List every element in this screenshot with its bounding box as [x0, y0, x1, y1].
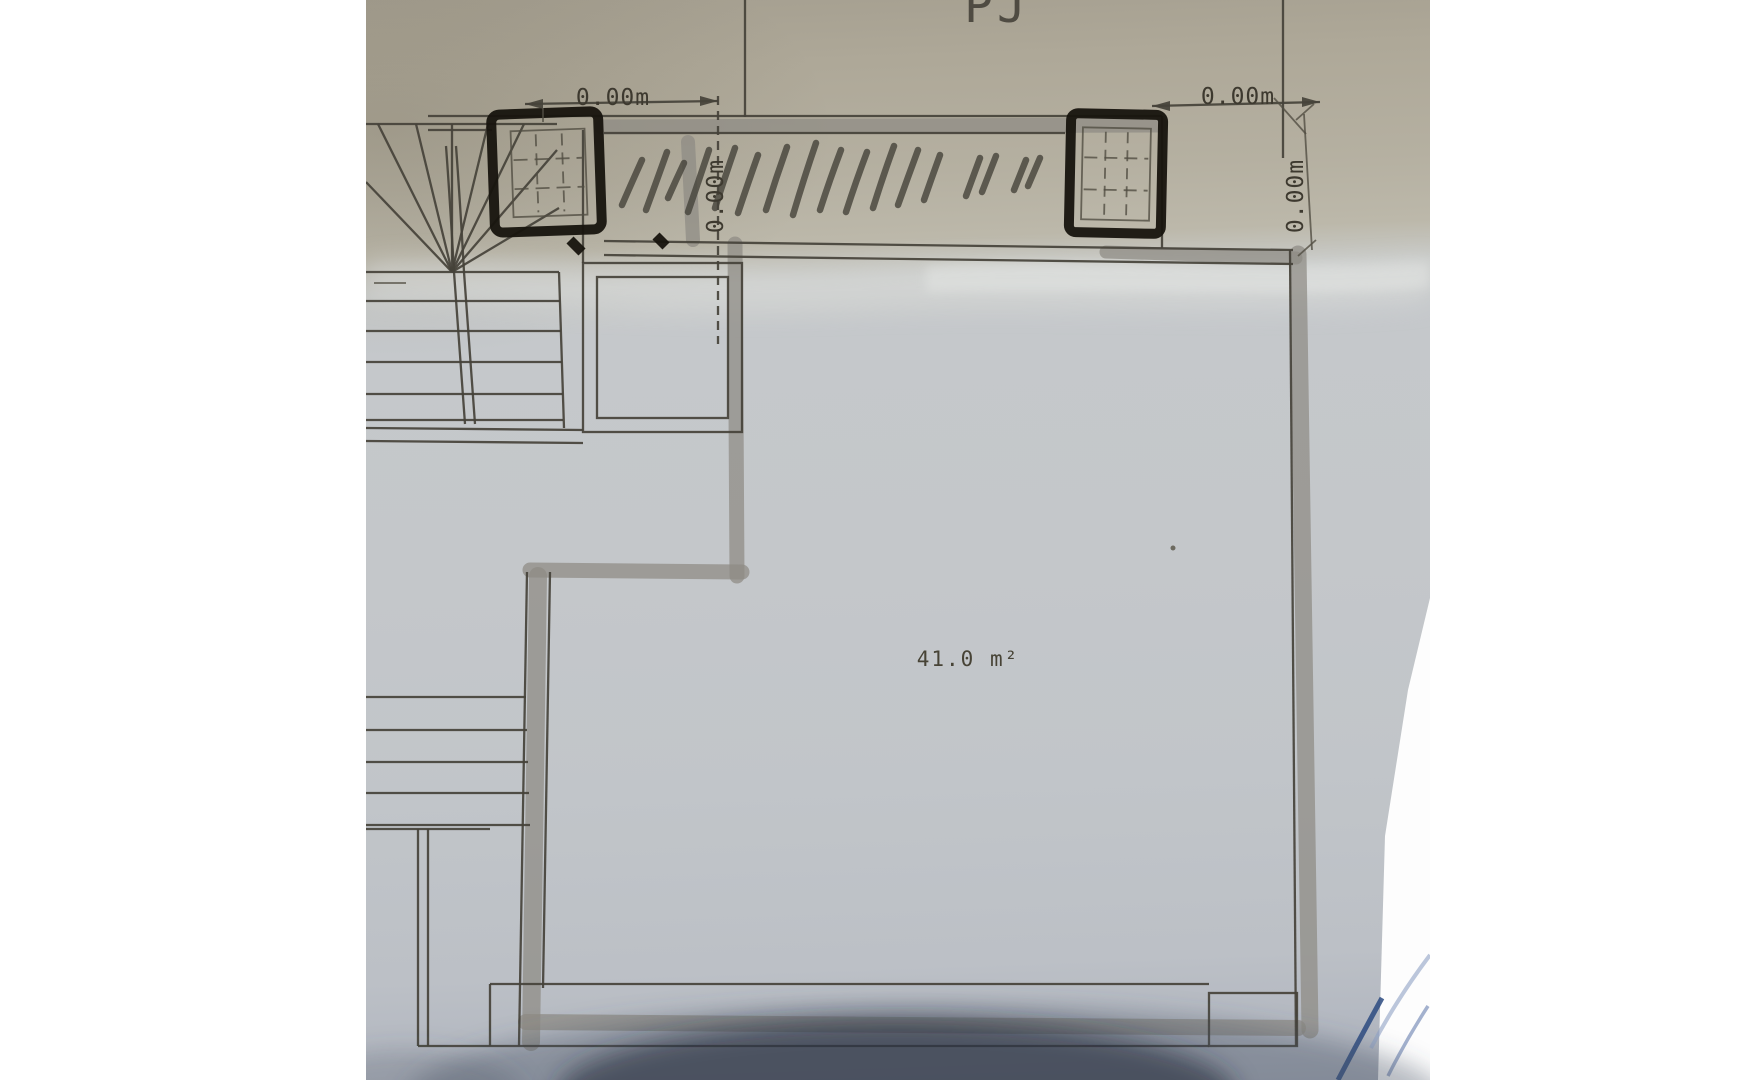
room-area-label: 41.0 m²	[917, 647, 1020, 671]
dim-top-left-value: 0.00m	[576, 85, 650, 111]
paper-crease	[366, 259, 1430, 311]
paper-corner-white	[1378, 598, 1430, 1080]
page: 0.00m 0.00m 0.00m 0.	[0, 0, 1755, 1080]
dim-left-vertical-value: 0.00m	[703, 159, 729, 233]
dimension-top-right: 0.00m	[1152, 0, 1320, 158]
paper-speck	[1171, 546, 1176, 551]
plan-code-label: PJ	[964, 0, 1030, 34]
dim-right-vertical-value: 0.00m	[1283, 159, 1309, 233]
stairs-lower	[366, 697, 530, 1046]
floorplan-photo: 0.00m 0.00m 0.00m 0.	[366, 0, 1430, 1080]
floorplan-drawing: 0.00m 0.00m 0.00m 0.	[366, 0, 1430, 1080]
dim-top-right-value: 0.00m	[1201, 84, 1275, 110]
